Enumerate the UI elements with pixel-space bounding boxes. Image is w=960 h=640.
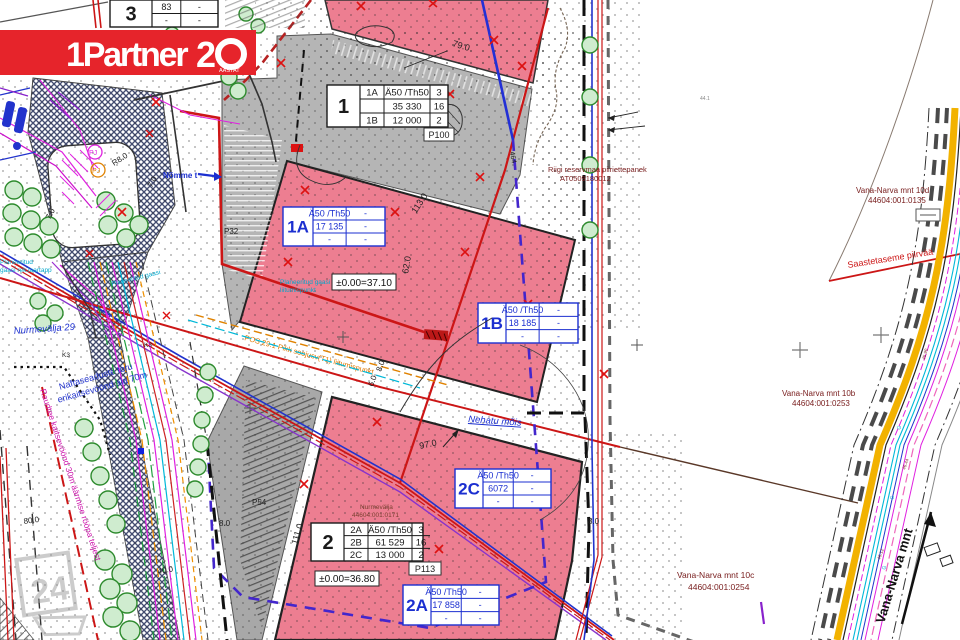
svg-text:8.0: 8.0 [219,519,231,528]
svg-text:17 135: 17 135 [316,222,344,232]
svg-text:Planeeritud: Planeeritud [0,259,33,266]
svg-text:44604:001:0135: 44604:001:0135 [868,196,926,205]
svg-text:K3: K3 [144,342,152,349]
svg-text:-: - [531,484,534,494]
svg-text:Ä50 /Th50: Ä50 /Th50 [385,87,429,98]
svg-text:1: 1 [338,96,349,118]
svg-text:2B: 2B [350,537,362,548]
svg-text:-: - [497,497,500,507]
svg-text:24: 24 [28,569,71,612]
svg-text:-: - [479,614,482,624]
svg-text:P32: P32 [224,227,239,236]
svg-text:35 330: 35 330 [392,101,421,112]
svg-text:Nurmevälja: Nurmevälja [360,504,393,511]
svg-text:61 529: 61 529 [375,537,404,548]
svg-text:-: - [364,235,367,245]
svg-text:Planeeritud gaasi: Planeeritud gaasi [280,279,330,286]
svg-text:16: 16 [416,537,427,548]
svg-text:-: - [364,222,367,232]
svg-text:13 000: 13 000 [375,550,404,561]
svg-text:3: 3 [125,4,136,26]
svg-text:±0.00=37.10: ±0.00=37.10 [336,278,392,289]
svg-text:3: 3 [436,87,441,98]
svg-text:Vana-Narva mnt 10d: Vana-Narva mnt 10d [856,186,929,195]
svg-text:-: - [328,235,331,245]
svg-text:2: 2 [322,532,333,554]
svg-text:liitumispunkt: liitumispunkt [280,287,316,294]
svg-text:AT0509180012: AT0509180012 [560,174,611,183]
svg-text:Vana-Narva mnt 10b: Vana-Narva mnt 10b [782,389,856,398]
svg-text:2A: 2A [350,525,362,536]
svg-text:PJ: PJ [89,150,97,157]
svg-text:12 000: 12 000 [392,115,421,126]
svg-text:17 858: 17 858 [432,600,460,610]
svg-text:-: - [364,209,367,219]
svg-text:44604:001:0171: 44604:001:0171 [352,512,399,519]
svg-text:44604:001:0254: 44604:001:0254 [688,582,750,592]
svg-text:AASTAT: AASTAT [219,68,240,74]
svg-text:P100: P100 [428,130,449,140]
svg-text:44604:001:0253: 44604:001:0253 [792,399,850,408]
svg-text:Ä50 /Th50: Ä50 /Th50 [309,209,351,219]
svg-text:Ä50 /Th50: Ä50 /Th50 [425,587,467,597]
svg-text:-: - [198,2,201,12]
svg-text:-: - [479,587,482,597]
svg-text:2: 2 [436,115,441,126]
svg-text:Ä50 /Th50: Ä50 /Th50 [502,305,544,315]
svg-text:-: - [531,497,534,507]
svg-text:44.1: 44.1 [700,96,710,102]
svg-text:P54: P54 [252,498,267,507]
svg-text:K3: K3 [62,352,70,359]
svg-text:3: 3 [418,525,423,536]
svg-text:2C: 2C [350,550,362,561]
svg-text:-: - [557,305,560,315]
svg-text:2A: 2A [406,596,428,615]
svg-text:-: - [521,332,524,342]
svg-text:-: - [557,332,560,342]
svg-text:18 185: 18 185 [509,318,537,328]
svg-text:Nõmme t: Nõmme t [163,171,198,180]
svg-text:Riigi reservmaa piiriettepanek: Riigi reservmaa piiriettepanek [548,165,647,174]
svg-text:-: - [531,471,534,481]
svg-text:Ä50 /Th50: Ä50 /Th50 [368,525,412,536]
svg-text:8.0: 8.0 [588,517,600,526]
svg-text:1A: 1A [366,87,378,98]
svg-text:16: 16 [434,101,445,112]
svg-text:±0.00=36.80: ±0.00=36.80 [319,574,375,585]
svg-text:2: 2 [196,34,216,75]
svg-text:1B: 1B [366,115,378,126]
svg-text:P113: P113 [415,564,435,574]
svg-text:2: 2 [418,550,423,561]
svg-text:1Partner: 1Partner [66,36,188,74]
svg-text:Ä50 /Th50: Ä50 /Th50 [477,471,519,481]
svg-text:83: 83 [161,2,171,12]
svg-text:gaasi rek.laartapp: gaasi rek.laartapp [0,267,52,274]
svg-text:-: - [479,600,482,610]
svg-text:2C: 2C [458,480,480,499]
svg-text:1B: 1B [481,314,503,333]
svg-text:1A: 1A [287,218,309,237]
svg-text:Vana-Narva mnt 10c: Vana-Narva mnt 10c [677,570,755,580]
svg-text:-: - [445,614,448,624]
svg-text:-: - [557,318,560,328]
svg-text:6072: 6072 [488,484,508,494]
svg-text:PJ: PJ [92,168,100,175]
svg-text:-: - [165,15,168,25]
svg-text:-: - [198,15,201,25]
